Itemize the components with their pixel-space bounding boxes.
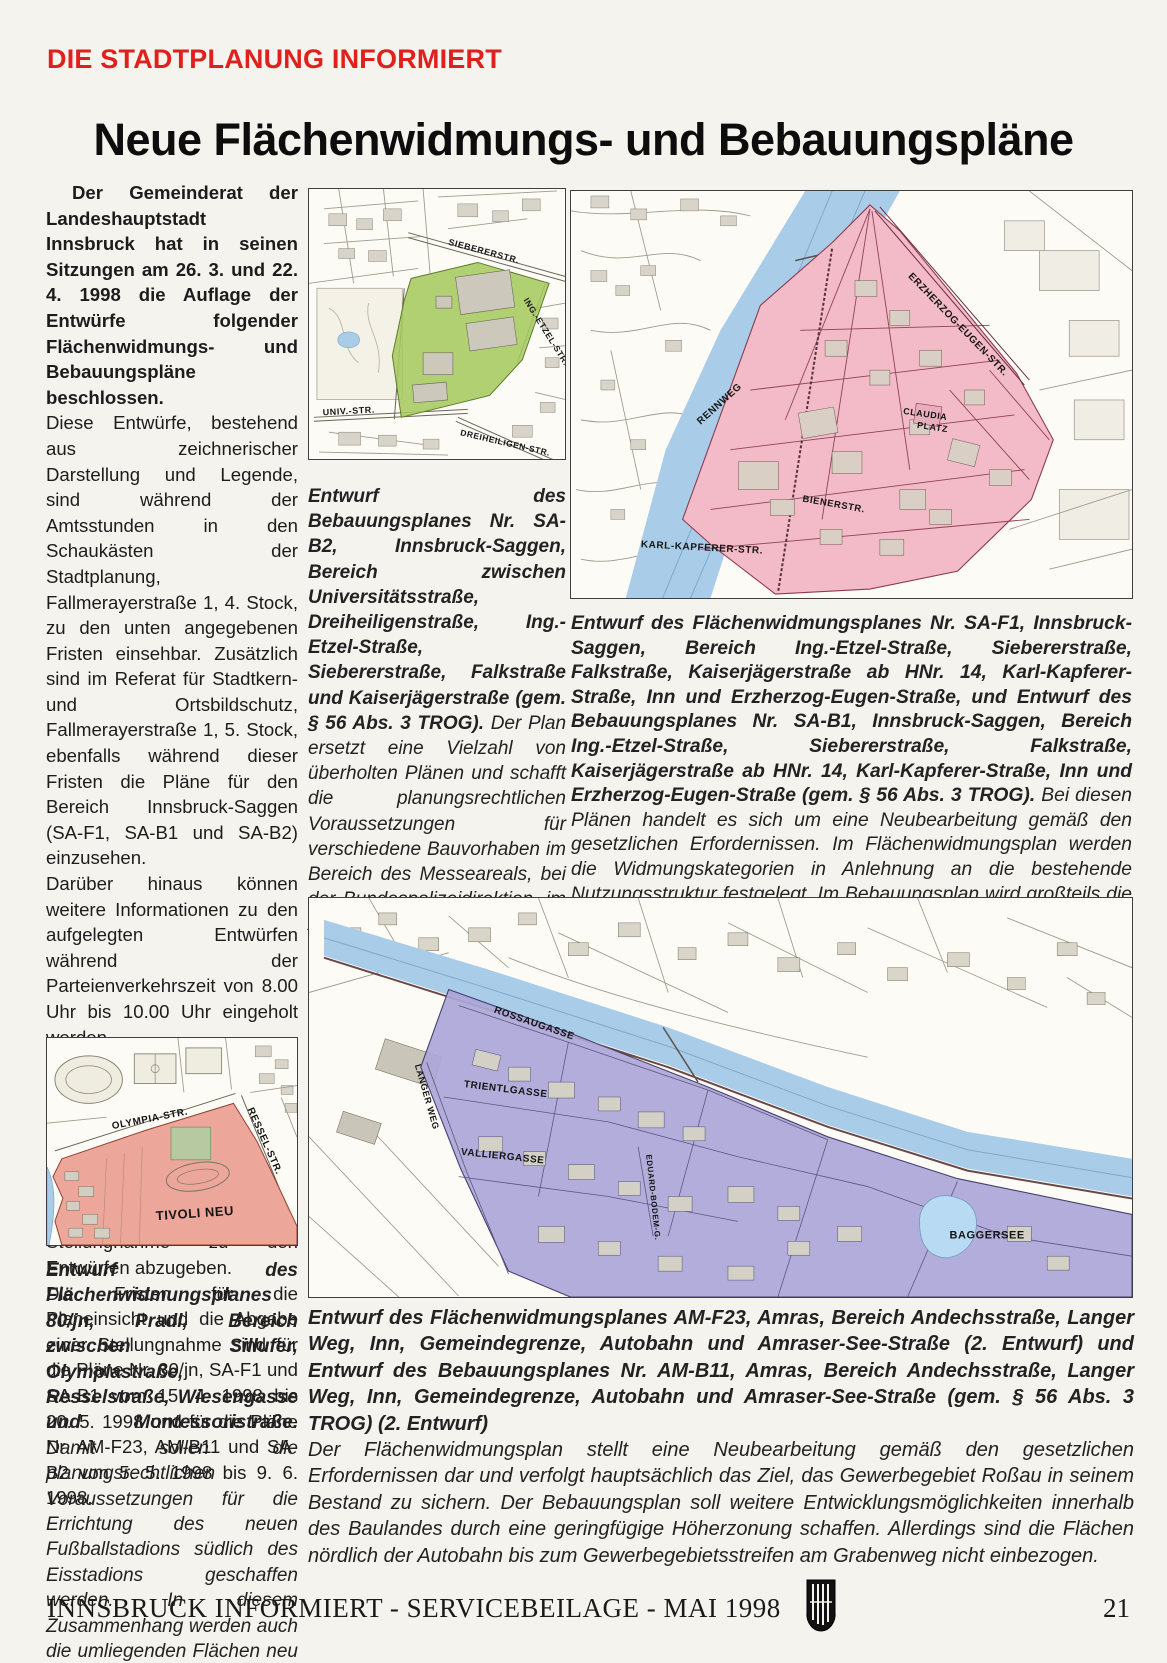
caption-am-f23: Entwurf des Flächenwidmungsplanes AM-F23… [308,1305,1134,1569]
lake-label-baggersee: BAGGERSEE [949,1229,1024,1241]
map-saggen-flaechenwidmungsplan: ERZHERZOG-EUGEN-STR. RENNWEG CLAUDIA PLA… [570,190,1133,599]
caption-tivoli-body: Damit sollen die planungsrechtlichen Vor… [46,1438,298,1663]
caption-tivoli-head: Entwurf des Flächenwidmungsplanes 80/jn,… [46,1260,298,1433]
map-amras-plan: ROSSAUGASSE TRIENTLGASSE VALLIERGASSE LA… [308,897,1133,1298]
map-saggen-bebauungsplan-canvas: SIEBERERSTR. ING.-ETZEL-STR. UNIV.-STR. … [309,189,565,459]
caption-sa-b2-head: Entwurf des Bebauungsplanes Nr. SA-B2, I… [308,486,566,734]
section-kicker: DIE STADTPLANUNG INFORMIERT [47,44,502,75]
article-paragraph: Darüber hinaus können weitere Informatio… [46,871,298,1050]
caption-sa-f1-head: Entwurf des Flächenwidmungsplanes Nr. SA… [571,613,1132,806]
article-paragraph: Diese Entwürfe, bestehend aus zeichneris… [46,410,298,871]
map-tivoli-plan: OLYMPIA-STR. RESSEL-STR. TIVOLI NEU [46,1037,298,1246]
caption-am-f23-body: Der Flächenwidmungsplan stellt eine Neub… [308,1437,1134,1569]
footer-magazine-title: INNSBRUCK INFORMIERT - SERVICEBEILAGE - … [47,1593,781,1624]
map-saggen-bebauungsplan: SIEBERERSTR. ING.-ETZEL-STR. UNIV.-STR. … [308,188,566,460]
caption-am-f23-head: Entwurf des Flächenwidmungsplanes AM-F23… [308,1305,1134,1437]
map-tivoli-plan-canvas: OLYMPIA-STR. RESSEL-STR. TIVOLI NEU [47,1038,297,1245]
sports-court [171,1127,211,1160]
page-number: 21 [1080,1593,1130,1624]
map-saggen-flaechenwidmungsplan-canvas: ERZHERZOG-EUGEN-STR. RENNWEG CLAUDIA PLA… [571,191,1132,598]
innsbruck-coat-of-arms-icon [804,1578,838,1639]
pond-shape [338,332,360,348]
page-title: Neue Flächenwidmungs- und Bebauungspläne [40,114,1127,166]
magazine-page: DIE STADTPLANUNG INFORMIERT Neue Flächen… [0,0,1167,1663]
map-amras-plan-canvas: ROSSAUGASSE TRIENTLGASSE VALLIERGASSE LA… [309,898,1132,1297]
article-lead: Der Gemeinderat der Landeshauptstadt Inn… [46,180,298,410]
